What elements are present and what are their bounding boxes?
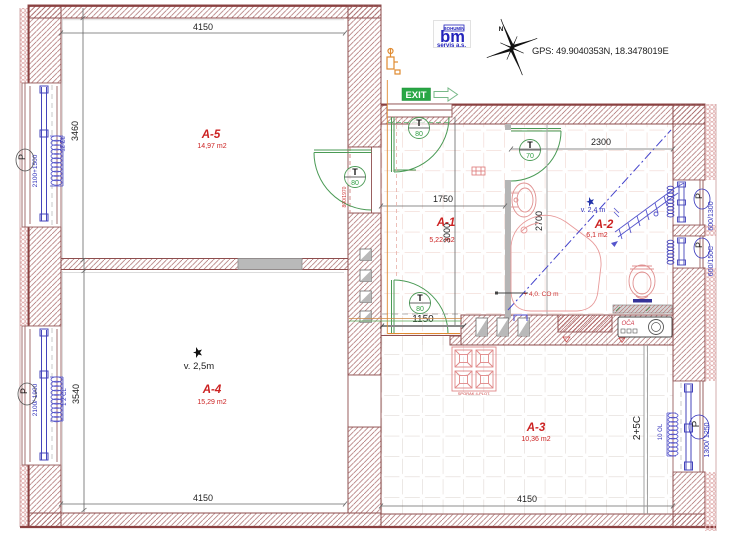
svg-text:P: P — [694, 193, 704, 199]
svg-text:T: T — [527, 140, 533, 150]
svg-text:A-1: A-1 — [436, 217, 456, 229]
svg-text:12 ZL: 12 ZL — [61, 136, 67, 152]
svg-text:2100/ 1900: 2100/ 1900 — [32, 383, 39, 416]
svg-text:2100+1500: 2100+1500 — [32, 154, 39, 187]
svg-text:4150: 4150 — [193, 493, 213, 503]
svg-text:80: 80 — [351, 180, 359, 187]
svg-text:v. 2,5m: v. 2,5m — [184, 361, 215, 372]
svg-text:T: T — [416, 118, 422, 128]
svg-text:6,1 m2: 6,1 m2 — [586, 232, 608, 239]
svg-text:servis a.s.: servis a.s. — [437, 43, 466, 49]
svg-text:A-3: A-3 — [526, 422, 546, 434]
svg-text:P: P — [691, 420, 702, 427]
svg-text:80: 80 — [416, 306, 424, 313]
svg-text:A-4: A-4 — [202, 384, 222, 396]
svg-text:3460: 3460 — [70, 121, 80, 141]
svg-text:A-5: A-5 — [201, 129, 221, 141]
svg-text:15,29 m2: 15,29 m2 — [197, 399, 226, 406]
svg-text:10 OL: 10 OL — [658, 423, 664, 440]
svg-text:600/150C: 600/150C — [708, 246, 715, 276]
svg-text:70: 70 — [526, 153, 534, 160]
svg-text:EXIT: EXIT — [405, 90, 426, 101]
svg-text:1750: 1750 — [433, 194, 453, 204]
svg-text:4150: 4150 — [517, 494, 537, 504]
svg-text:1300/ 1250: 1300/ 1250 — [704, 422, 711, 457]
svg-text:v. 2,4 m: v. 2,4 m — [581, 207, 606, 214]
svg-text:2700: 2700 — [534, 211, 544, 231]
svg-text:P: P — [694, 242, 704, 248]
svg-text:600/1300: 600/1300 — [708, 201, 715, 230]
svg-text:P: P — [17, 154, 27, 160]
svg-text:N: N — [499, 26, 504, 33]
svg-text:T: T — [417, 293, 423, 303]
svg-text:800/1970: 800/1970 — [342, 186, 348, 207]
svg-text:OČA: OČA — [621, 320, 634, 327]
svg-text:GPS: 49.9040353N, 18.3478019E: GPS: 49.9040353N, 18.3478019E — [532, 45, 669, 56]
svg-text:5,22 m2: 5,22 m2 — [429, 237, 454, 244]
svg-text:14,97 m2: 14,97 m2 — [197, 143, 226, 150]
svg-text:+ 4,0. CO m: + 4,0. CO m — [523, 291, 558, 298]
svg-text:A-2: A-2 — [594, 219, 614, 231]
svg-text:2300: 2300 — [591, 137, 611, 147]
svg-text:10,36 m2: 10,36 m2 — [521, 436, 550, 443]
svg-text:SPORAK 4-PLOT.: SPORAK 4-PLOT. — [458, 391, 490, 396]
svg-text:P: P — [19, 388, 29, 394]
svg-text:1150: 1150 — [412, 314, 434, 325]
svg-text:T: T — [352, 167, 358, 177]
svg-text:3540: 3540 — [71, 384, 81, 404]
svg-text:4150: 4150 — [193, 22, 213, 32]
svg-text:2+5C: 2+5C — [632, 416, 643, 440]
svg-text:1 2 ĆL: 1 2 ĆL — [61, 388, 68, 406]
svg-text:80: 80 — [415, 131, 423, 138]
